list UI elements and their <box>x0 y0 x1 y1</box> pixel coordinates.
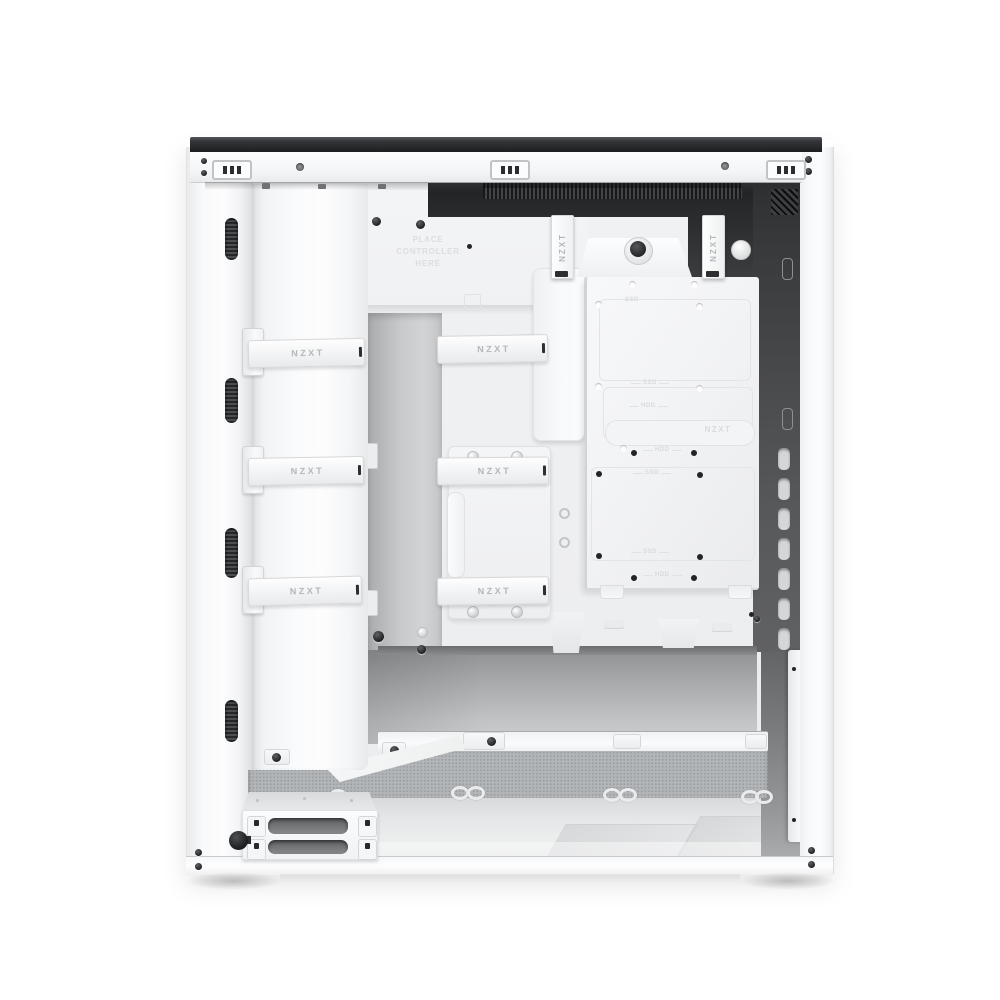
rear-edge-screw <box>792 818 796 822</box>
rail-screw <box>201 170 207 176</box>
mount-screw-hole <box>631 575 637 581</box>
marking-dash <box>659 383 669 384</box>
mount-hole <box>629 281 636 288</box>
marking-label: SSD <box>643 380 657 386</box>
mount-hole <box>595 301 602 308</box>
strap-end-notch <box>706 271 719 277</box>
rear-edge-screw <box>792 667 796 671</box>
under-rail-shadow <box>205 182 800 190</box>
bracket-rail <box>447 492 465 578</box>
shelf-tab <box>613 734 641 749</box>
marking-dash <box>633 473 643 474</box>
mesh-grommet <box>619 788 637 802</box>
marking-label: HDD <box>655 572 670 578</box>
tray-emboss-tab <box>604 620 624 629</box>
cable-strap: NZXT <box>248 576 363 607</box>
latch-pin <box>777 166 781 174</box>
strap-end-notch <box>356 585 359 595</box>
drive-emboss-outline <box>599 299 751 381</box>
corner-screw <box>805 156 812 163</box>
panel-latch-slot <box>490 160 530 180</box>
marking-dash <box>643 575 653 576</box>
rear-panel-wall <box>753 170 802 652</box>
rear-vent-slot <box>778 448 790 470</box>
cage-tab-hole <box>254 820 259 826</box>
tray-emboss-tab <box>712 623 732 632</box>
marking-label: SSD <box>643 549 657 555</box>
rear-screw <box>754 616 760 622</box>
strap-label: NZXT <box>288 348 325 359</box>
strap-end-notch <box>542 343 545 353</box>
marking-label: HDD <box>655 447 670 453</box>
corner-screw <box>195 863 202 870</box>
strap-label: NZXT <box>287 586 324 597</box>
tray-hook-hole <box>559 508 570 519</box>
drive-marking: HDD <box>643 447 682 453</box>
mount-screw-hole <box>697 472 703 478</box>
lip-screw <box>417 645 426 654</box>
foot-shadow <box>740 872 836 890</box>
strap-label: NZXT <box>475 466 512 476</box>
rail-clip <box>378 184 386 189</box>
panel-latch-slot <box>766 160 806 180</box>
cage-tab <box>358 816 377 837</box>
hdd-cage <box>242 810 378 860</box>
cable-strap: NZXT <box>248 338 366 368</box>
tray-emboss-square <box>464 294 481 311</box>
channel-standoff <box>417 627 428 638</box>
cage-tab-hole <box>365 843 370 849</box>
foot-screw <box>272 753 281 762</box>
corner-screw <box>808 861 815 868</box>
marking-dash <box>672 450 682 451</box>
mount-hole <box>595 383 602 390</box>
cage-hole <box>350 799 353 802</box>
mount-hole <box>696 303 703 310</box>
front-vent-slot <box>225 218 238 260</box>
marking-label: HDD <box>641 403 656 409</box>
channel-screw <box>373 631 384 642</box>
cage-hole <box>303 797 306 800</box>
mount-screw-hole <box>631 450 637 456</box>
tray-hole <box>467 244 472 249</box>
tray-hook-hole <box>559 537 570 548</box>
drive-marking: HDD <box>643 572 682 578</box>
mount-screw-hole <box>691 450 697 456</box>
tray-screw <box>416 220 425 229</box>
standoff-stud <box>731 240 751 260</box>
corner-screw <box>805 168 812 175</box>
latch-pin <box>508 166 512 174</box>
latch-pin <box>515 166 519 174</box>
marking-label: SSD <box>645 470 659 476</box>
mount-screw-hole <box>596 553 602 559</box>
mesh-grommet <box>755 790 773 804</box>
corner-screw <box>808 847 815 854</box>
strap-label: NZXT <box>558 233 567 262</box>
tray-screw <box>372 217 381 226</box>
rear-clip <box>782 258 793 280</box>
rail-clip <box>318 184 326 189</box>
foot-shadow <box>186 872 282 890</box>
drive-tray: NZXT SSD SSD HDD HDD SSD SSD <box>585 277 759 590</box>
cage-tab <box>358 839 377 860</box>
bracket-standoff <box>467 606 479 618</box>
strap-end-notch <box>543 585 546 595</box>
cage-tab-hole <box>365 820 370 826</box>
marking-dash <box>643 450 653 451</box>
top-rail <box>190 152 802 183</box>
strap-end-notch <box>359 347 362 357</box>
front-vent-slot <box>225 528 238 578</box>
tray-brand-emboss: NZXT <box>687 425 749 434</box>
marking-dash <box>658 406 668 407</box>
drive-marking: SSD <box>633 470 671 476</box>
front-vent-slot <box>225 378 238 423</box>
drive-marking: SSD <box>631 549 669 555</box>
rail-clip <box>262 183 270 189</box>
rail-screw <box>201 158 207 164</box>
strap-label: NZXT <box>288 466 325 477</box>
drive-marking: SSD <box>631 380 669 386</box>
thumbscrew-knob <box>630 241 646 257</box>
mount-hole <box>696 385 703 392</box>
cable-strap-vertical: NZXT <box>702 215 725 279</box>
rear-vent-slot <box>778 628 790 650</box>
latch-pin <box>223 166 227 174</box>
drive-marking: SSD <box>625 297 639 303</box>
right-outer-frame <box>800 147 834 874</box>
strap-end-notch <box>358 465 361 475</box>
note-line-2: CONTROLLER <box>388 246 468 258</box>
tray-foot <box>728 585 752 599</box>
latch-pin <box>237 166 241 174</box>
shelf-screw <box>487 737 496 746</box>
rear-hatch-vent <box>771 189 798 215</box>
rear-vent-slot <box>778 478 790 500</box>
rail-hole <box>296 163 304 171</box>
latch-pin <box>501 166 505 174</box>
bracket-standoff <box>511 606 523 618</box>
cable-strap: NZXT <box>437 457 549 486</box>
marking-dash <box>631 552 641 553</box>
marking-dash <box>672 575 682 576</box>
case-bottom-shadow <box>280 874 740 884</box>
cable-strap-vertical: NZXT <box>551 215 574 279</box>
product-photo-nzxt-case: PLACE CONTROLLER HERE <box>0 0 1000 1000</box>
strap-end-notch <box>555 271 568 277</box>
front-frame <box>186 147 253 874</box>
controller-placement-note: PLACE CONTROLLER HERE <box>388 234 468 270</box>
tray-hole <box>749 612 754 617</box>
hdd-cage-slot <box>268 840 348 854</box>
cable-strap: NZXT <box>437 576 549 606</box>
mount-screw-hole <box>697 554 703 560</box>
rear-clip <box>782 408 793 430</box>
note-line-1: PLACE <box>388 234 468 246</box>
drive-marking: HDD <box>629 403 668 409</box>
cable-strap: NZXT <box>437 334 548 364</box>
cage-hole <box>256 799 259 802</box>
latch-pin <box>784 166 788 174</box>
cage-tab <box>247 816 266 837</box>
note-line-3: HERE <box>388 258 468 270</box>
psu-tunnel-shadow <box>368 650 757 744</box>
strap-label: NZXT <box>709 233 718 262</box>
mount-screw-hole <box>596 471 602 477</box>
marking-dash <box>631 383 641 384</box>
rear-vent-slot <box>778 568 790 590</box>
marking-dash <box>629 406 639 407</box>
drive-emboss-outline <box>591 467 755 561</box>
top-panel-edge <box>190 137 822 152</box>
strap-label: NZXT <box>475 586 512 597</box>
strap-label: NZXT <box>474 344 511 355</box>
rail-hole <box>721 162 729 170</box>
tray-foot <box>600 585 624 599</box>
mount-hole <box>691 281 698 288</box>
shelf-tab <box>745 734 767 749</box>
mount-screw-hole <box>691 575 697 581</box>
marking-label: SSD <box>625 297 639 303</box>
front-vent-slot <box>225 700 238 742</box>
shelf-tab <box>463 732 505 750</box>
corner-screw <box>195 849 202 856</box>
mount-hole <box>620 445 627 452</box>
cage-tab-hole <box>254 843 259 849</box>
marking-dash <box>659 552 669 553</box>
hdd-cage-top <box>242 792 376 811</box>
hdd-cage-slot <box>268 818 348 834</box>
latch-pin <box>791 166 795 174</box>
rear-vent-slot <box>778 508 790 530</box>
mesh-grommet <box>467 786 485 800</box>
latch-pin <box>230 166 234 174</box>
cable-channel <box>368 313 442 652</box>
cable-strap: NZXT <box>248 456 364 486</box>
cage-thumbscrew <box>229 831 248 850</box>
strap-end-notch <box>543 466 546 476</box>
panel-latch-slot <box>212 160 252 180</box>
rear-vent-slot <box>778 598 790 620</box>
rear-vent-slot <box>778 538 790 560</box>
marking-dash <box>661 473 671 474</box>
